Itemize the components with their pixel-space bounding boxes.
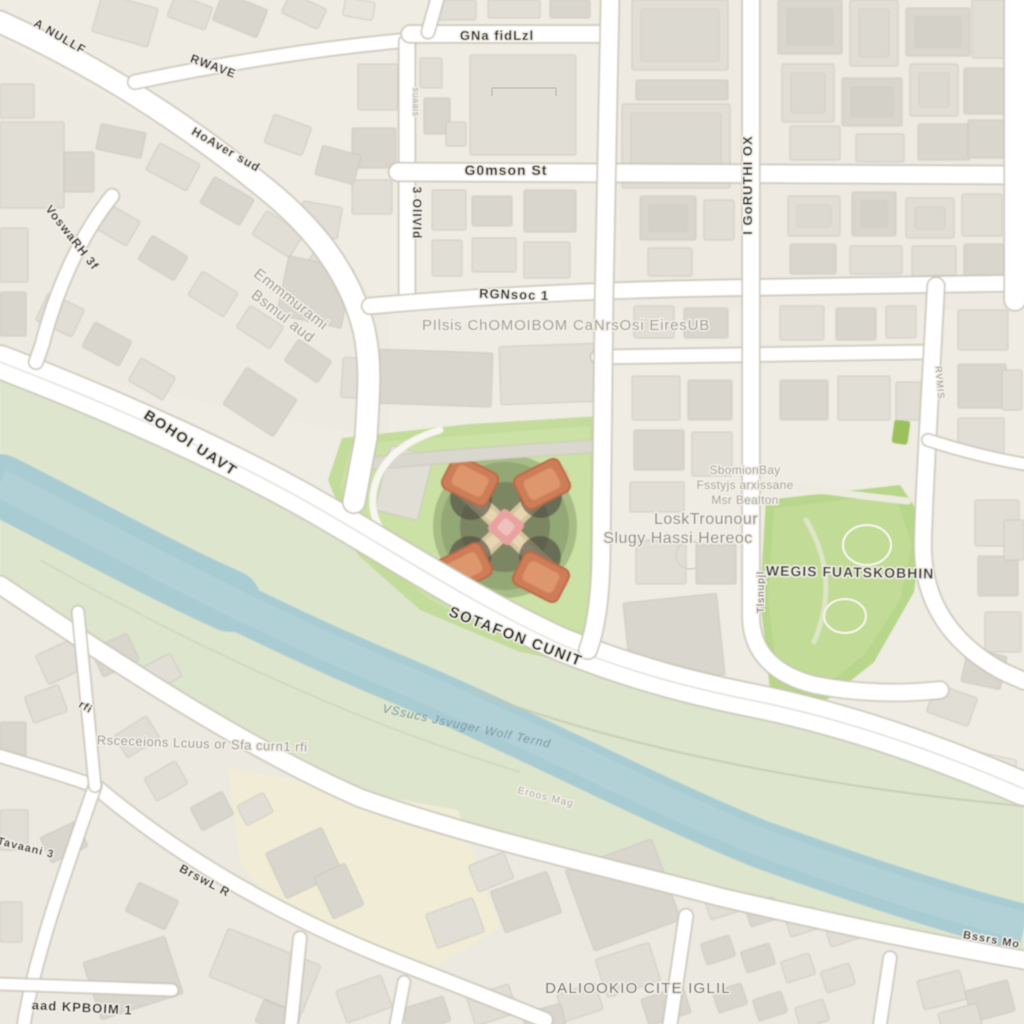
svg-text:GNa fidLzl: GNa fidLzl [460, 28, 534, 43]
svg-text:Slugy Hassi Hereoc: Slugy Hassi Hereoc [603, 530, 753, 547]
svg-text:PIlsis ChOMOIBOM CaNrsOsi Eire: PIlsis ChOMOIBOM CaNrsOsi EiresUB [422, 317, 710, 334]
svg-text:DALIOOKIO CITE IGLIL: DALIOOKIO CITE IGLIL [545, 980, 731, 997]
svg-text:Tlsnupjl: Tlsnupjl [756, 571, 767, 613]
svg-text:Msr Bealton: Msr Bealton [711, 493, 778, 507]
svg-text:Fsstyjs arxissane: Fsstyjs arxissane [696, 478, 793, 492]
svg-text:RGNsoc 1: RGNsoc 1 [479, 286, 550, 303]
svg-text:I GoRUTHI OX: I GoRUTHI OX [740, 135, 755, 234]
svg-text:3 OlIVId: 3 OlIVId [410, 187, 424, 240]
svg-text:LoskTrounour: LoskTrounour [654, 511, 758, 528]
svg-text:SbomionBay: SbomionBay [709, 463, 780, 477]
svg-text:G0mson St: G0mson St [465, 162, 548, 178]
svg-text:suaais: suaais [411, 87, 421, 116]
svg-text:WEGIS FUATSKOBHIN: WEGIS FUATSKOBHIN [766, 563, 935, 582]
